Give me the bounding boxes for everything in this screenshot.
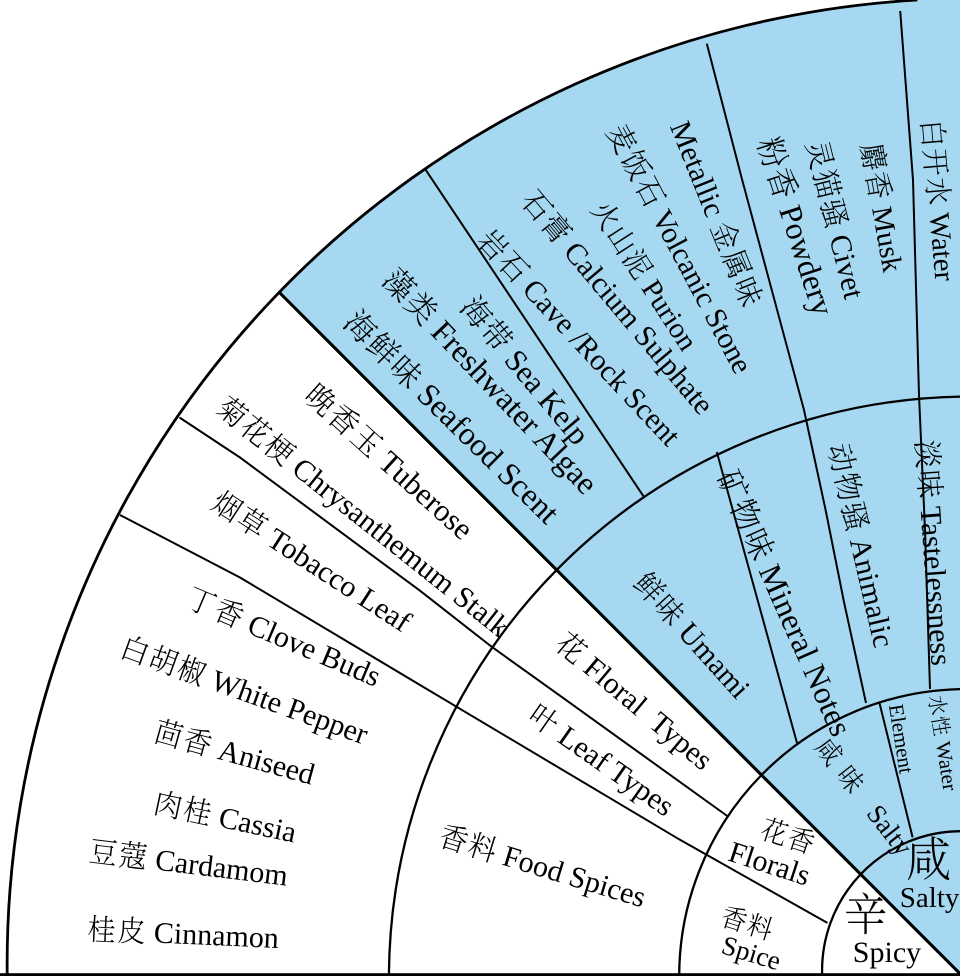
svg-text:Salty: Salty — [900, 882, 960, 914]
svg-text:Cinnamon: Cinnamon — [153, 917, 279, 955]
svg-text:Water: Water — [923, 211, 960, 282]
svg-text:Spicy: Spicy — [853, 936, 921, 969]
